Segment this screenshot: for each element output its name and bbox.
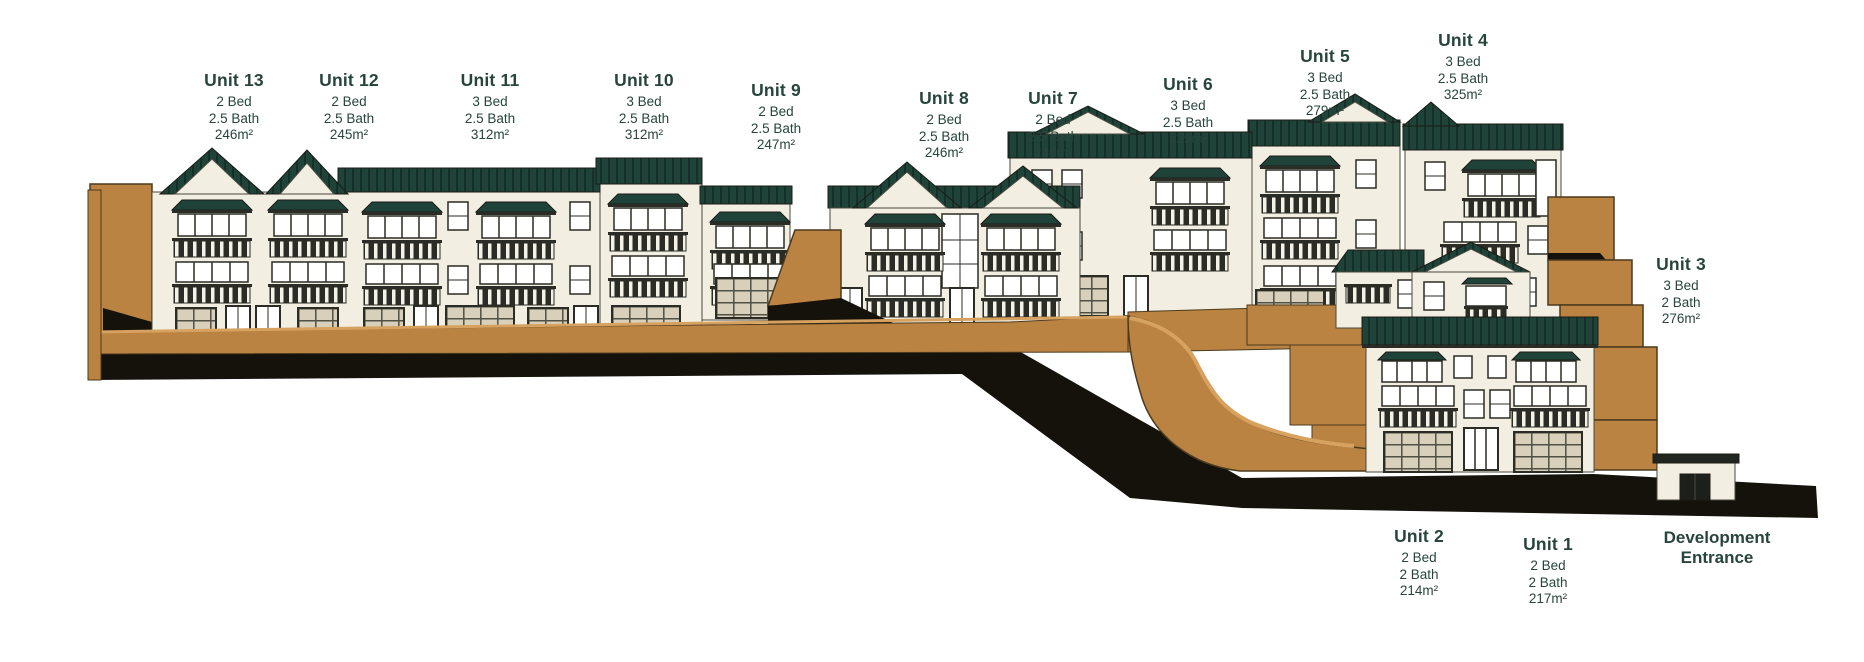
unit-area: 245m² xyxy=(319,127,379,144)
unit-area: 329m² xyxy=(1163,131,1213,148)
unit-9-label: Unit 9 2 Bed 2.5 Bath 247m² xyxy=(751,80,801,154)
unit-area: 214m² xyxy=(1394,583,1444,600)
unit-beds: 2 Bed xyxy=(919,112,969,129)
unit-5-label: Unit 5 3 Bed 2.5 Bath 279m² xyxy=(1300,46,1350,120)
building-units-13-9 xyxy=(152,148,792,348)
unit-baths: 2 Bath xyxy=(1394,567,1444,584)
unit-beds: 2 Bed xyxy=(204,94,264,111)
unit-baths: 2.5 Bath xyxy=(1163,115,1213,132)
unit-10-label: Unit 10 3 Bed 2.5 Bath 312m² xyxy=(614,70,674,144)
entrance-line-2: Entrance xyxy=(1664,548,1771,568)
unit-title: Unit 2 xyxy=(1394,526,1444,547)
unit-beds: 2 Bed xyxy=(751,104,801,121)
unit-1-label: Unit 1 2 Bed 2 Bath 217m² xyxy=(1523,534,1573,608)
unit-baths: 2 Bath xyxy=(1523,575,1573,592)
unit-area: 312m² xyxy=(461,127,520,144)
unit-11-label: Unit 11 3 Bed 2.5 Bath 312m² xyxy=(461,70,520,144)
unit-title: Unit 6 xyxy=(1163,74,1213,95)
unit-beds: 2 Bed xyxy=(319,94,379,111)
unit-title: Unit 5 xyxy=(1300,46,1350,67)
unit-baths: 2.5 Bath xyxy=(204,111,264,128)
building-units-2-1 xyxy=(1362,317,1598,472)
development-entrance-label: Development Entrance xyxy=(1664,528,1771,568)
unit-area: 246m² xyxy=(1028,145,1078,162)
unit-baths: 2.5 Bath xyxy=(751,121,801,138)
unit-area: 246m² xyxy=(919,145,969,162)
unit-beds: 3 Bed xyxy=(1163,98,1213,115)
unit-4-label: Unit 4 3 Bed 2.5 Bath 325m² xyxy=(1438,30,1488,104)
unit-6-label: Unit 6 3 Bed 2.5 Bath 329m² xyxy=(1163,74,1213,148)
unit-baths: 2.5 Bath xyxy=(319,111,379,128)
unit-baths: 2.5 Bath xyxy=(919,129,969,146)
unit-baths: 2.5 Bath xyxy=(1300,87,1350,104)
unit-area: 217m² xyxy=(1523,591,1573,608)
unit-title: Unit 12 xyxy=(319,70,379,91)
unit-area: 325m² xyxy=(1438,87,1488,104)
unit-beds: 3 Bed xyxy=(1300,70,1350,87)
unit-baths: 2.5 Bath xyxy=(614,111,674,128)
unit-2-label: Unit 2 2 Bed 2 Bath 214m² xyxy=(1394,526,1444,600)
unit-beds: 2 Bed xyxy=(1028,112,1078,129)
entrance-line-1: Development xyxy=(1664,528,1771,548)
development-entrance-structure xyxy=(1653,454,1739,500)
unit-beds: 3 Bed xyxy=(1656,278,1706,295)
unit-3-label: Unit 3 3 Bed 2 Bath 276m² xyxy=(1656,254,1706,328)
unit-13-label: Unit 13 2 Bed 2.5 Bath 246m² xyxy=(204,70,264,144)
unit-area: 279m² xyxy=(1300,103,1350,120)
unit-title: Unit 8 xyxy=(919,88,969,109)
unit-title: Unit 3 xyxy=(1656,254,1706,275)
unit-beds: 2 Bed xyxy=(1523,558,1573,575)
unit-beds: 3 Bed xyxy=(1438,54,1488,71)
unit-baths: 2.5 Bath xyxy=(461,111,520,128)
unit-baths: 2.5 Bath xyxy=(1438,71,1488,88)
unit-title: Unit 9 xyxy=(751,80,801,101)
unit-beds: 2 Bed xyxy=(1394,550,1444,567)
unit-12-label: Unit 12 2 Bed 2.5 Bath 245m² xyxy=(319,70,379,144)
unit-area: 276m² xyxy=(1656,311,1706,328)
unit-area: 247m² xyxy=(751,137,801,154)
unit-baths: 2 Bath xyxy=(1656,295,1706,312)
unit-baths: 2.5 Bath xyxy=(1028,129,1078,146)
site-elevation-drawing: Unit 13 2 Bed 2.5 Bath 246m² Unit 12 2 B… xyxy=(0,0,1864,662)
building-units-8-7 xyxy=(828,162,1080,330)
unit-beds: 3 Bed xyxy=(461,94,520,111)
unit-area: 312m² xyxy=(614,127,674,144)
unit-title: Unit 11 xyxy=(461,70,520,91)
unit-7-label: Unit 7 2 Bed 2.5 Bath 246m² xyxy=(1028,88,1078,162)
unit-title: Unit 10 xyxy=(614,70,674,91)
unit-title: Unit 7 xyxy=(1028,88,1078,109)
unit-area: 246m² xyxy=(204,127,264,144)
unit-title: Unit 13 xyxy=(204,70,264,91)
unit-title: Unit 4 xyxy=(1438,30,1488,51)
unit-8-label: Unit 8 2 Bed 2.5 Bath 246m² xyxy=(919,88,969,162)
unit-title: Unit 1 xyxy=(1523,534,1573,555)
unit-beds: 3 Bed xyxy=(614,94,674,111)
